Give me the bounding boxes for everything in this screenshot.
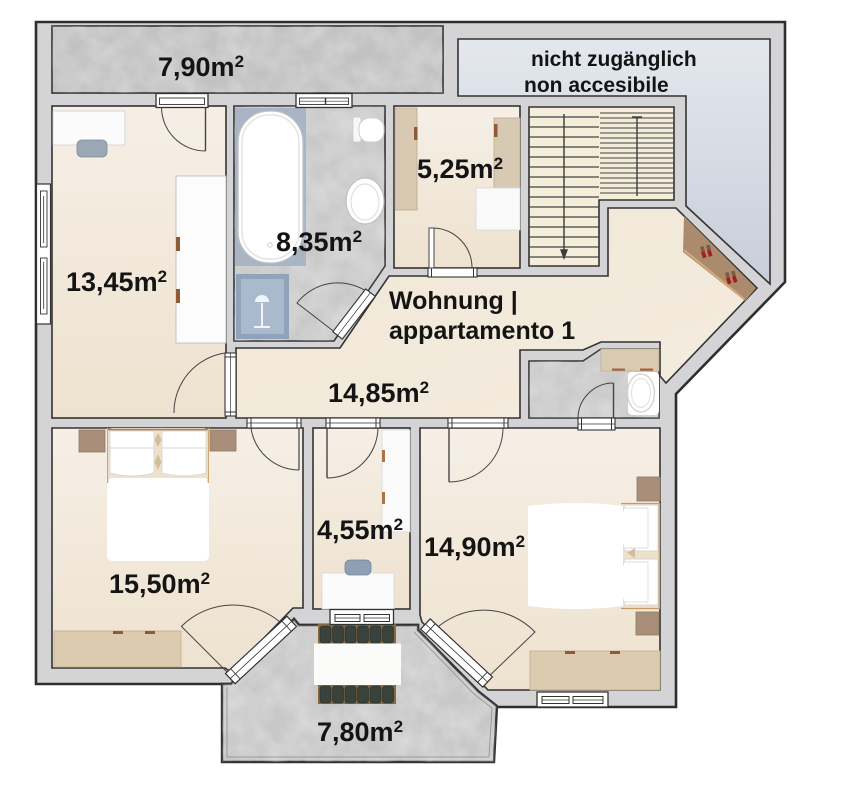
svg-text:13,45m2: 13,45m2 bbox=[66, 267, 167, 297]
svg-text:8,35m2: 8,35m2 bbox=[276, 227, 362, 257]
svg-text:Wohnung |: Wohnung | bbox=[389, 287, 518, 315]
svg-text:appartamento 1: appartamento 1 bbox=[389, 317, 575, 345]
svg-text:4,55m2: 4,55m2 bbox=[317, 515, 403, 545]
svg-text:7,90m2: 7,90m2 bbox=[158, 52, 244, 82]
svg-text:14,85m2: 14,85m2 bbox=[328, 378, 429, 408]
svg-text:nicht zugänglich: nicht zugänglich bbox=[531, 48, 697, 71]
svg-text:non accesibile: non accesibile bbox=[524, 74, 669, 97]
svg-text:14,90m2: 14,90m2 bbox=[424, 532, 525, 562]
svg-text:15,50m2: 15,50m2 bbox=[109, 569, 210, 599]
svg-text:5,25m2: 5,25m2 bbox=[417, 154, 503, 184]
svg-text:7,80m2: 7,80m2 bbox=[317, 717, 403, 747]
